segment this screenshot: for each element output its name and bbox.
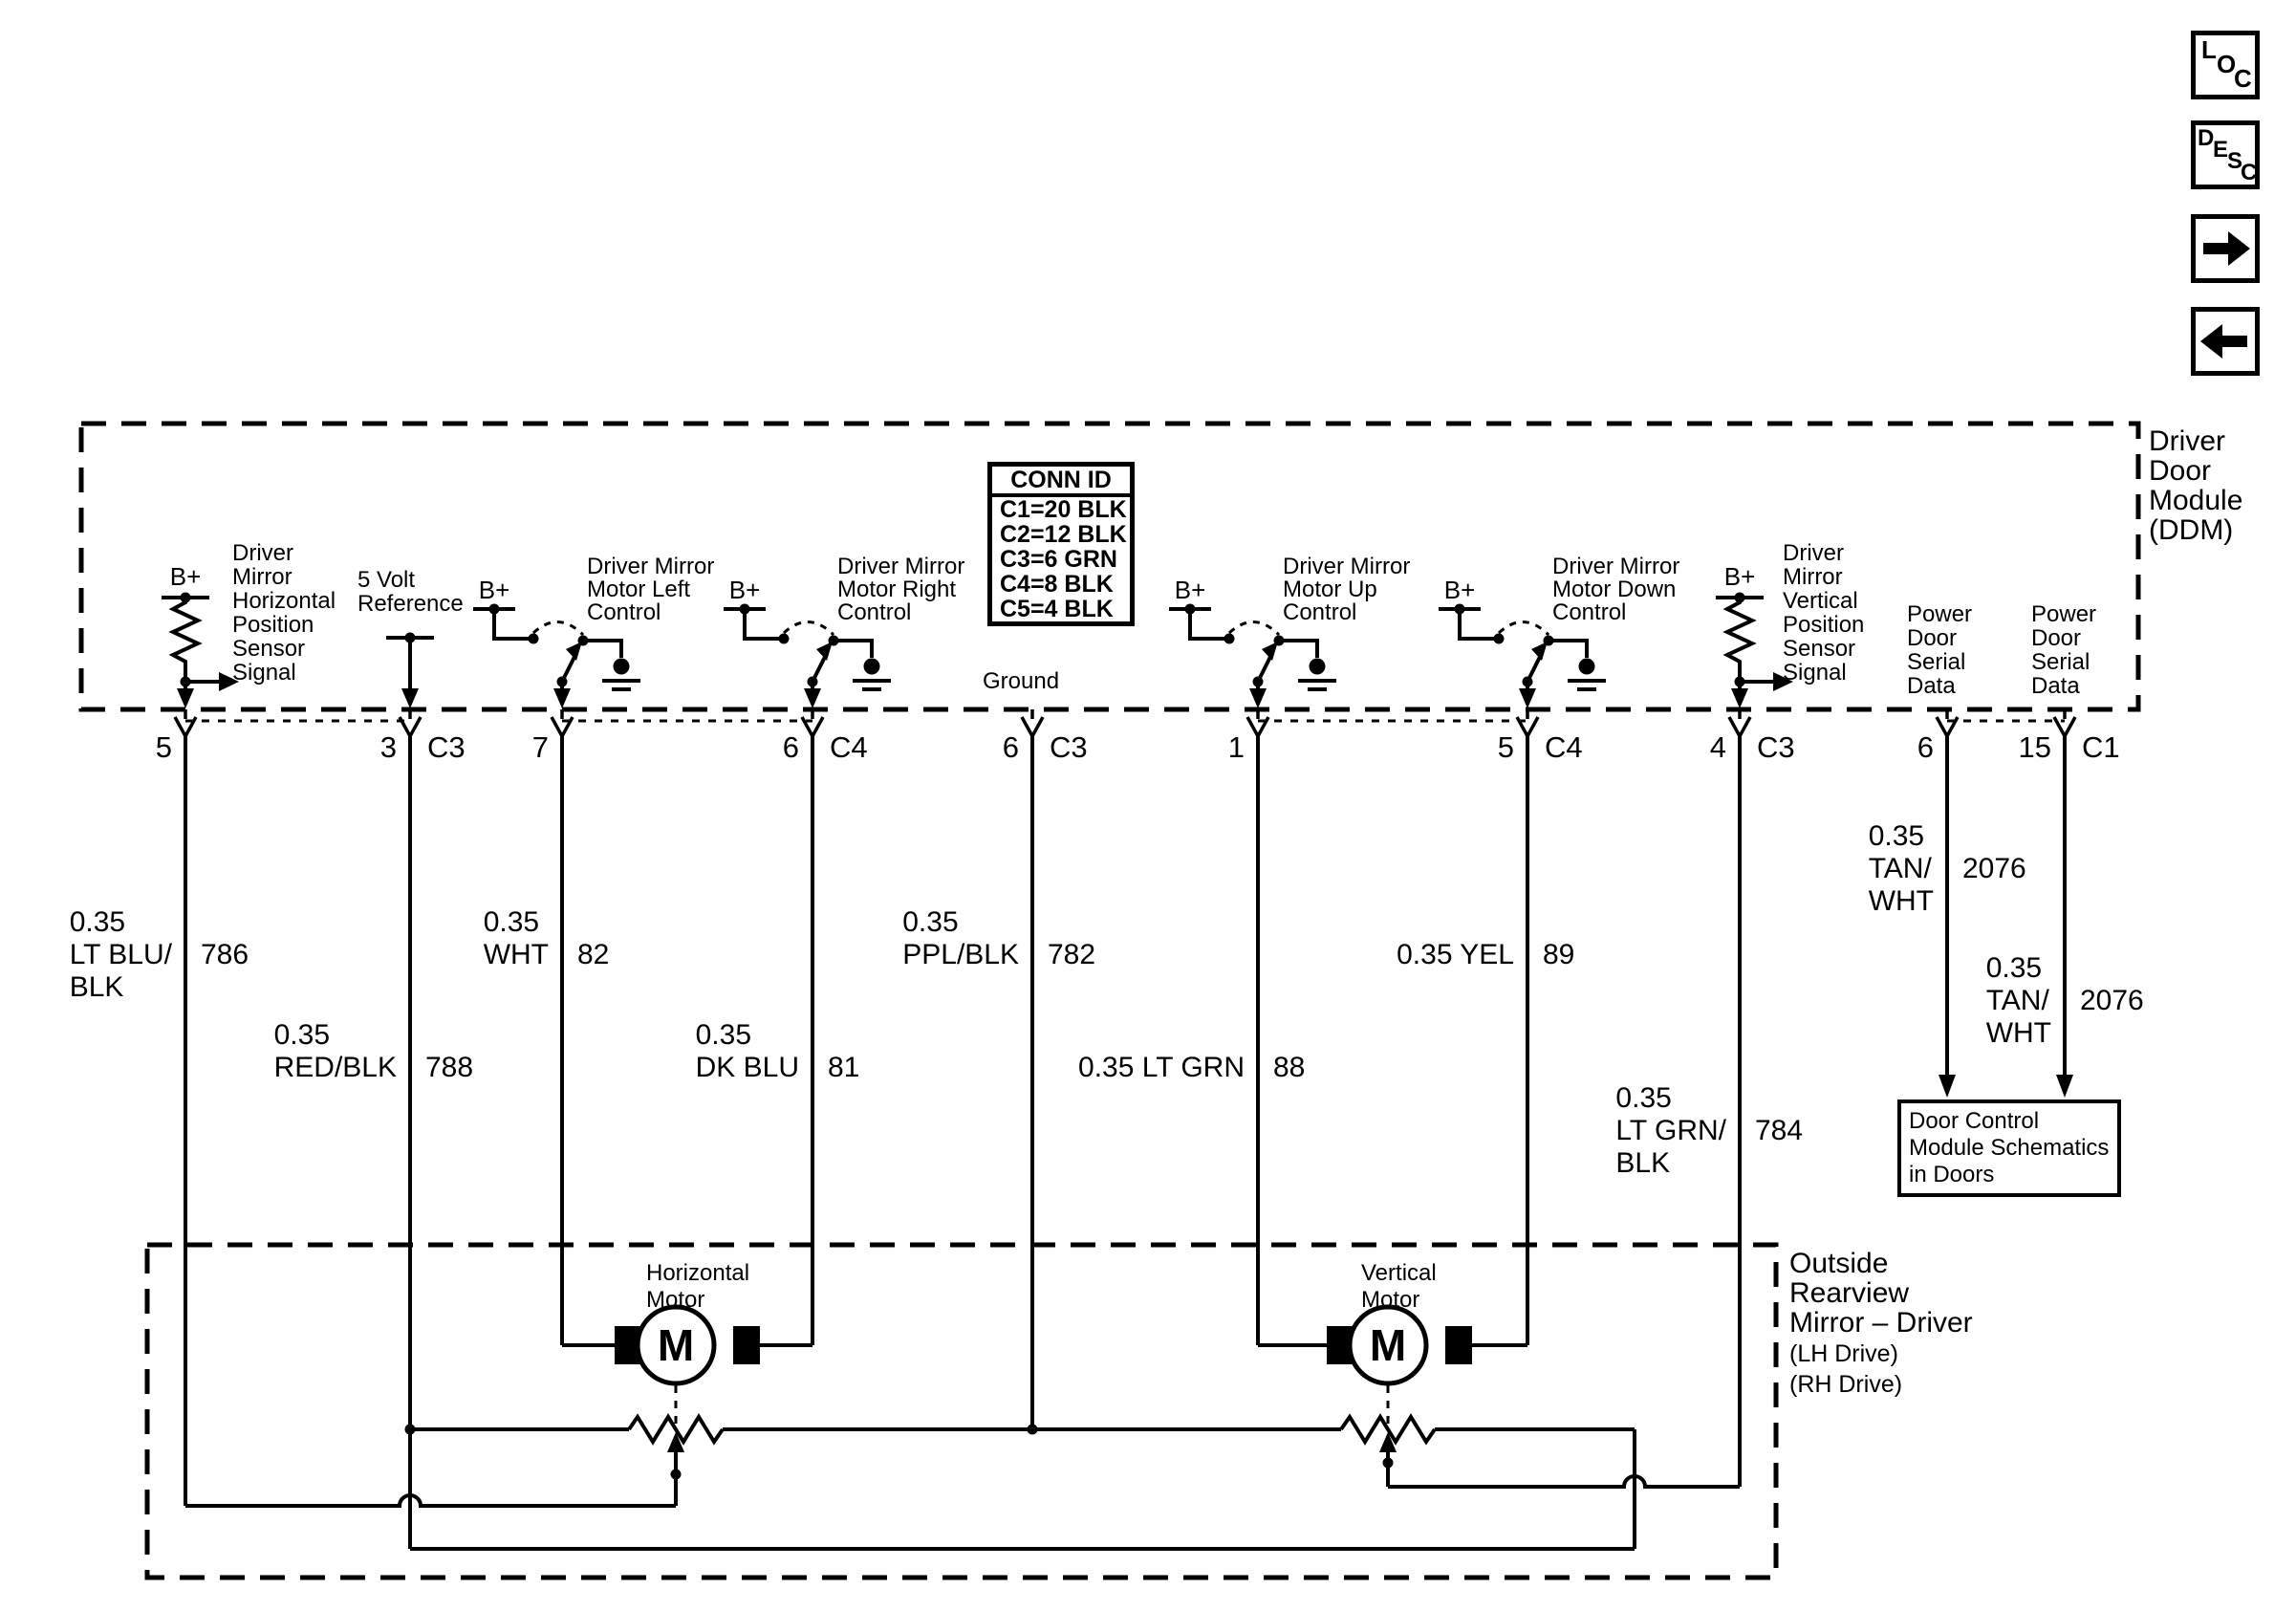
circuit-number-89: 89 (1543, 939, 1574, 971)
wire-label-2076-b: 0.35TAN/WHT (1986, 952, 2051, 1050)
pin-connector-id: C3 (427, 732, 466, 763)
serial-data-label-1: PowerDoor SerialData (1907, 602, 1972, 698)
desc-letter: E (2213, 137, 2228, 163)
vertical-motor-label: VerticalMotor (1361, 1260, 1437, 1314)
prev-button[interactable] (2191, 307, 2260, 376)
loc-letter: C (2234, 64, 2252, 94)
five-volt-reference-symbol (386, 633, 434, 709)
ddm-title-line: Module (2149, 486, 2242, 515)
ddm-title-line: Driver (2149, 426, 2242, 456)
mirror-box-subtitle: (LH Drive) (RH Drive) (1789, 1339, 1902, 1400)
wiring-diagram-page: M M L O C D E S C CONN ID C1=20 BLK C2=1… (0, 0, 2296, 1611)
pin-connector-id: C4 (1545, 732, 1583, 763)
wire-label-782: 0.35PPL/BLK (902, 906, 1019, 971)
pin-number: 1 (1228, 732, 1245, 763)
pin-connector-id: C3 (1050, 732, 1088, 763)
motor-down-control-label: Driver MirrorMotor DownControl (1552, 555, 1679, 624)
circuit-number-82: 82 (577, 939, 609, 971)
pin-number: 7 (532, 732, 549, 763)
pin-number: 15 (2019, 732, 2051, 763)
wire-label-786: 0.35LT BLU/BLK (70, 906, 172, 1004)
conn-id-row: C2=12 BLK (992, 522, 1130, 547)
sensor-horizontal-symbol (162, 593, 239, 709)
desc-letter: C (2241, 160, 2257, 186)
circuit-number-2076-a: 2076 (1962, 853, 2026, 885)
wiring-svg: M M (0, 0, 2296, 1611)
pin-number: 6 (1003, 732, 1019, 763)
conn-id-row: C3=6 GRN (992, 547, 1130, 572)
motor-right-control-label: Driver MirrorMotor RightControl (837, 555, 964, 624)
door-box-line: Door Control (1909, 1108, 2117, 1135)
conn-id-row: C4=8 BLK (992, 572, 1130, 597)
sensor-vertical-symbol (1716, 593, 1793, 709)
right-arrow-icon (2196, 219, 2255, 278)
serial-wire-arrowheads (1939, 1075, 2073, 1098)
door-box-line: in Doors (1909, 1162, 2117, 1188)
mirror-assembly-box (147, 1245, 1776, 1578)
ddm-title-line: Door (2149, 456, 2242, 486)
horizontal-motor-label: HorizontalMotor (646, 1260, 749, 1314)
pin-number: 5 (156, 732, 172, 763)
bplus-label: B+ (1444, 576, 1476, 605)
pin-number: 4 (1710, 732, 1726, 763)
circuit-number-788: 788 (425, 1052, 473, 1084)
mirror-box-title: Outside Rearview Mirror – Driver (1789, 1249, 1973, 1338)
five-volt-reference-label: 5 VoltReference (357, 568, 464, 616)
ground-label: Ground (983, 669, 1059, 693)
door-box-line: Module Schematics (1909, 1135, 2117, 1162)
loc-button[interactable]: L O C (2191, 31, 2260, 99)
desc-button[interactable]: D E S C (2191, 120, 2260, 189)
desc-letter: D (2198, 125, 2214, 152)
circuit-number-81: 81 (828, 1052, 859, 1084)
pin-connector-id: C1 (2082, 732, 2120, 763)
wire-label-82: 0.35WHT (484, 906, 549, 971)
pin-connector-id: C3 (1757, 732, 1795, 763)
wire-label-784: 0.35LT GRN/BLK (1615, 1082, 1726, 1180)
circuit-number-88: 88 (1273, 1052, 1305, 1084)
sensor-horizontal-label: DriverMirror HorizontalPosition SensorSi… (232, 541, 336, 685)
wire-label-88: 0.35 LT GRN (1078, 1052, 1245, 1084)
bplus-label: B+ (170, 562, 202, 592)
motor-up-control-label: Driver MirrorMotor UpControl (1283, 555, 1410, 624)
circuit-number-786: 786 (201, 939, 249, 971)
conn-id-row: C1=20 BLK (992, 497, 1130, 522)
serial-data-label-2: PowerDoor SerialData (2031, 602, 2096, 698)
circuit-number-782: 782 (1048, 939, 1095, 971)
bplus-label: B+ (1724, 562, 1756, 592)
wire-label-81: 0.35DK BLU (696, 1019, 799, 1084)
wire-label-788: 0.35RED/BLK (274, 1019, 397, 1084)
pin-number: 6 (783, 732, 799, 763)
bplus-label: B+ (479, 576, 510, 605)
bplus-label: B+ (729, 576, 761, 605)
conn-id-table: CONN ID C1=20 BLK C2=12 BLK C3=6 GRN C4=… (987, 462, 1135, 626)
bplus-label: B+ (1175, 576, 1206, 605)
circuit-number-784: 784 (1755, 1115, 1803, 1147)
conn-id-header: CONN ID (992, 467, 1130, 497)
pin-number: 5 (1498, 732, 1514, 763)
wire-label-2076-a: 0.35TAN/WHT (1869, 820, 1934, 918)
sensor-vertical-label: DriverMirror VerticalPosition SensorSign… (1783, 541, 1864, 685)
ddm-title: Driver Door Module (DDM) (2149, 426, 2242, 545)
loc-letter: L (2201, 35, 2217, 65)
horizontal-motor-letter: M (658, 1320, 694, 1370)
conn-id-row: C5=4 BLK (992, 597, 1130, 621)
left-arrow-icon (2196, 312, 2255, 371)
circuit-number-2076-b: 2076 (2080, 985, 2144, 1017)
door-control-module-box: Door Control Module Schematics in Doors (1897, 1099, 2121, 1197)
motor-left-control-label: Driver MirrorMotor LeftControl (587, 555, 714, 624)
pin-connector-id: C4 (830, 732, 868, 763)
next-button[interactable] (2191, 214, 2260, 283)
ddm-title-line: (DDM) (2149, 515, 2242, 545)
wire-label-89: 0.35 YEL (1397, 939, 1514, 971)
vertical-motor-letter: M (1370, 1320, 1406, 1370)
position-potentiometers (185, 1417, 1740, 1549)
pin-number: 3 (380, 732, 397, 763)
pin-number: 6 (1917, 732, 1934, 763)
